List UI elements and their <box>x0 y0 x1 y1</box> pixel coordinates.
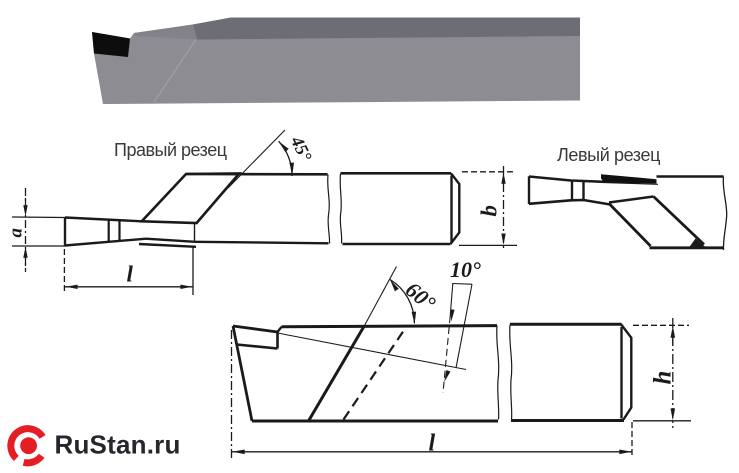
svg-text:10°: 10° <box>450 257 481 282</box>
svg-text:60°: 60° <box>401 277 441 316</box>
svg-text:45°: 45° <box>286 132 316 165</box>
svg-text:a: a <box>6 228 27 238</box>
svg-text:l: l <box>429 431 436 457</box>
svg-text:RuStan.ru: RuStan.ru <box>55 430 181 460</box>
svg-text:Правый резец: Правый резец <box>114 140 227 160</box>
svg-text:b: b <box>477 205 502 217</box>
svg-text:l: l <box>127 262 134 287</box>
svg-text:Левый резец: Левый резец <box>557 145 660 165</box>
svg-text:h: h <box>650 371 677 385</box>
